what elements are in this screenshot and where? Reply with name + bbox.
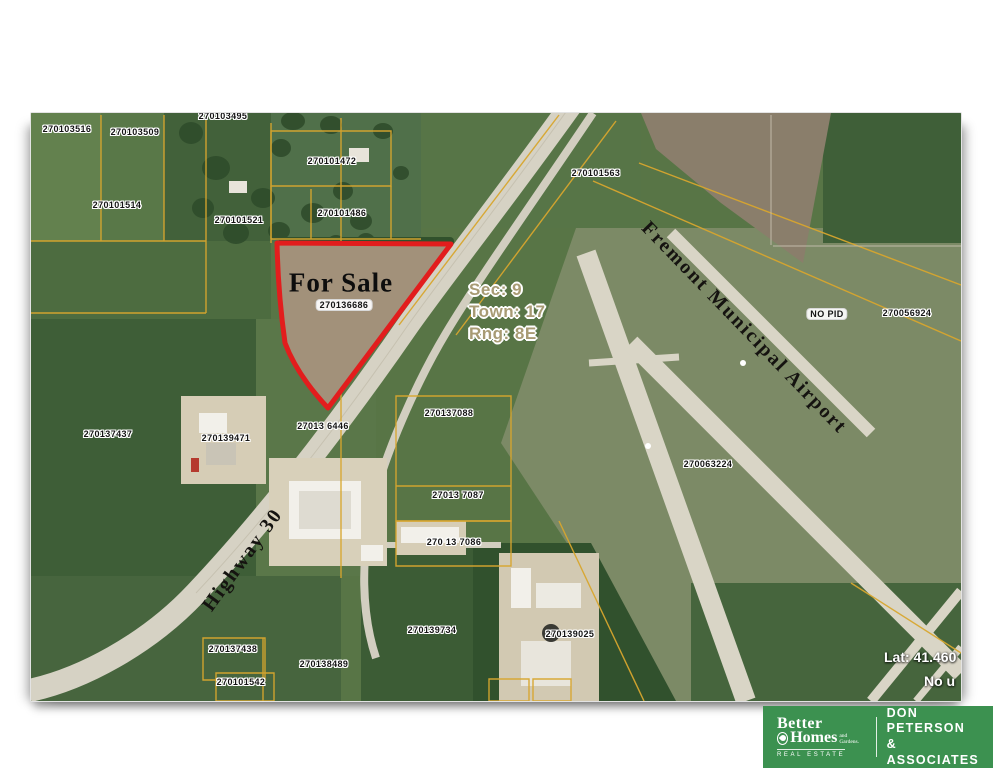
parcel-label: 270101521 <box>215 215 264 225</box>
parcel-label: 27013 7087 <box>432 490 484 500</box>
parcel-label: 270103495 <box>199 112 248 121</box>
parcel-label: 270063224 <box>684 459 733 469</box>
parcel-label: 270101542 <box>217 677 266 687</box>
leaf-icon <box>777 732 788 745</box>
bhg-realestate-text: REAL ESTATE <box>777 749 845 758</box>
range-line: Rng: 8E <box>469 323 545 345</box>
parcel-label: 270101514 <box>93 200 142 210</box>
for-sale-label: For Sale <box>289 268 393 299</box>
parcel-label: 270139734 <box>408 625 457 635</box>
parcel-label: 270138489 <box>300 659 349 669</box>
highway-name-label: Highway 30 <box>198 504 288 616</box>
parcel-label: 270103516 <box>43 124 92 134</box>
page: For Sale Sec: 9 Town: 17 Rng: 8E Fremont… <box>0 0 993 768</box>
brokerage-logo: Better Homes and Gardens. REAL ESTATE DO… <box>763 706 993 768</box>
parcel-label: 270137438 <box>209 644 258 654</box>
map-labels: For Sale Sec: 9 Town: 17 Rng: 8E Fremont… <box>31 113 961 701</box>
parcel-label: 270101563 <box>572 168 621 178</box>
parcel-label: 270137088 <box>425 408 474 418</box>
township-line: Town: 17 <box>469 301 545 323</box>
parcel-label: 270 13 7086 <box>427 537 481 547</box>
bhg-homes-text: Homes <box>790 730 837 746</box>
agency-line1: DON PETERSON <box>887 706 993 737</box>
parcel-label: 270136686 <box>316 299 373 311</box>
bhg-logo: Better Homes and Gardens. REAL ESTATE <box>777 716 864 758</box>
bhg-gardens-text: and Gardens. <box>839 734 863 745</box>
parcel-label: 270139025 <box>546 629 595 639</box>
parcel-label: 270137437 <box>84 429 133 439</box>
parcel-label: 270103509 <box>111 127 160 137</box>
latitude-label: Lat: 41.460 <box>884 649 956 665</box>
section-township-range: Sec: 9 Town: 17 Rng: 8E <box>469 279 545 345</box>
agency-name: DON PETERSON & ASSOCIATES <box>887 706 993 768</box>
no-use-label: No u <box>924 673 955 689</box>
aerial-map: For Sale Sec: 9 Town: 17 Rng: 8E Fremont… <box>30 112 962 702</box>
parcel-label: 270101486 <box>318 208 367 218</box>
parcel-label: 270101472 <box>308 156 357 166</box>
agency-line2: & ASSOCIATES <box>887 737 993 768</box>
airport-name-label: Fremont Municipal Airport <box>636 217 851 439</box>
parcel-label: 270139471 <box>202 433 251 443</box>
parcel-label: NO PID <box>806 308 847 320</box>
logo-divider <box>876 717 877 757</box>
section-line: Sec: 9 <box>469 279 545 301</box>
parcel-label: 27013 6446 <box>297 421 349 431</box>
parcel-label: 270056924 <box>883 308 932 318</box>
